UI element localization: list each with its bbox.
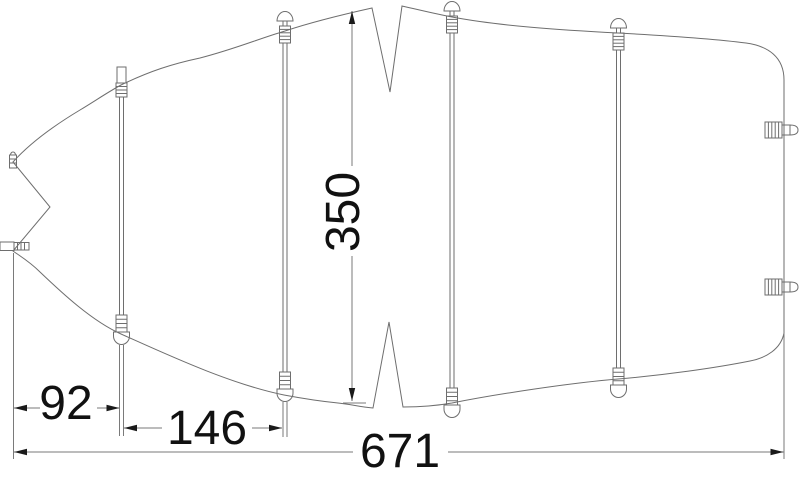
stern-side-fitting-lower [765, 279, 798, 295]
dimension-first-to-second-batten: 146 [124, 402, 282, 455]
bow-clip-lower [0, 242, 29, 251]
dimension-bow-to-first-batten: 92 [14, 377, 120, 430]
batten-2 [277, 12, 293, 438]
arrow-right-icon [771, 449, 784, 455]
batten-4 [611, 19, 627, 398]
cover-outline [13, 6, 784, 408]
batten-4-bottom-fitting [611, 368, 627, 398]
arrow-right-icon [107, 405, 120, 411]
stern-side-fitting-upper [765, 122, 798, 138]
batten-1 [114, 67, 130, 436]
arrow-left-icon [14, 449, 27, 455]
technical-drawing: 92 146 671 350 [0, 0, 800, 480]
dimension-label-146: 146 [167, 402, 247, 455]
batten-3 [444, 2, 460, 418]
cover-outline-path [13, 6, 784, 408]
dimension-label-92: 92 [39, 377, 92, 430]
dimension-label-671: 671 [360, 425, 440, 478]
dimension-overall-width: 350 [317, 11, 370, 403]
batten-1-bottom-fitting [114, 315, 130, 345]
arrow-left-icon [124, 425, 137, 431]
dimension-label-350: 350 [317, 172, 370, 252]
arrow-down-icon [349, 388, 355, 401]
arrow-right-icon [269, 425, 282, 431]
drawing-canvas: 92 146 671 350 [0, 0, 800, 480]
dimension-overall-length: 671 [14, 425, 784, 478]
tube-end [0, 242, 14, 251]
batten-2-bottom-fitting [277, 372, 293, 402]
batten-4-top-fitting [611, 19, 627, 51]
batten-2-top-fitting [277, 12, 293, 44]
arrow-left-icon [14, 405, 27, 411]
tube-end [117, 67, 126, 83]
batten-1-top-fitting [116, 67, 127, 97]
